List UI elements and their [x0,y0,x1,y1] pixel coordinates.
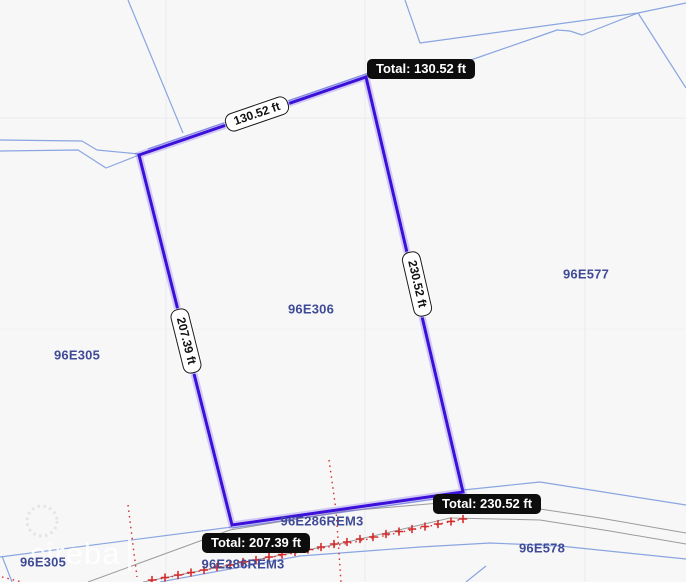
total-tooltip-bottom: Total: 207.39 ft [202,533,310,553]
map-canvas[interactable]: cireba 96E306 96E577 96E305 96E286REM3 9… [0,0,686,582]
parcel-label-96E306: 96E306 [288,302,334,317]
parcel-label-96E286REM3-upper: 96E286REM3 [281,514,364,529]
watermark-logo-icon [27,506,57,536]
parcel-label-96E305-lower: 96E305 [20,555,66,570]
total-tooltip-right: Total: 230.52 ft [433,494,541,514]
total-tooltip-top: Total: 130.52 ft [367,59,475,79]
watermark-divider [128,538,131,571]
road-casing-lines [88,503,686,582]
parcel-label-96E578: 96E578 [519,541,565,556]
parcel-label-96E577: 96E577 [563,267,609,282]
parcel-label-96E305: 96E305 [54,348,100,363]
map-layers [0,0,686,582]
parcel-label-96E286REM3-lower: 96E286REM3 [202,557,285,572]
